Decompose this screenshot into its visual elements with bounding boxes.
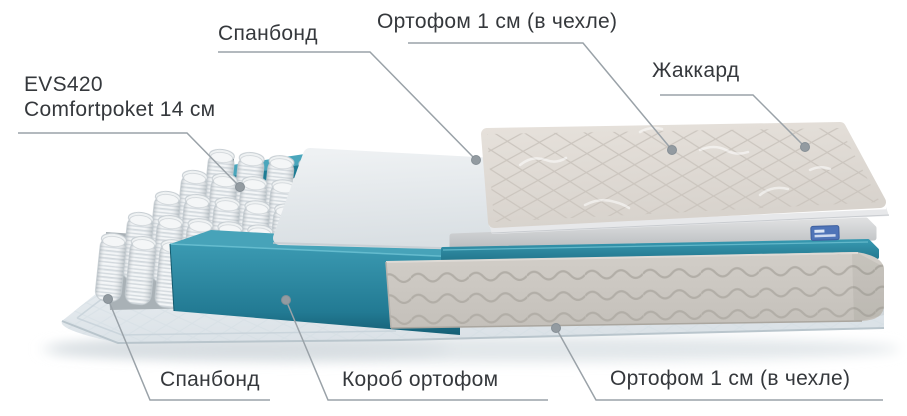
callout-ortofoam-bottom: Ортофом 1 см (в чехле) (610, 366, 850, 391)
leader-spanbond-top (218, 52, 476, 160)
springs-size-line: Comfortpoket 14 см (24, 97, 215, 122)
mattress-illustration (0, 0, 907, 416)
callout-ortofoam-top: Ортофом 1 см (в чехле) (377, 9, 617, 34)
callout-jacquard: Жаккард (652, 58, 739, 83)
brand-tag (811, 226, 839, 241)
callout-spanbond-bottom: Спанбонд (160, 367, 260, 392)
callout-korob: Короб ортофом (342, 367, 498, 392)
springs-model-line: EVS420 (24, 72, 215, 97)
ortofoam-side-layer (386, 252, 884, 328)
callout-springs: EVS420 Comfortpoket 14 см (24, 72, 215, 122)
mattress-layers-diagram: Спанбонд Ортофом 1 см (в чехле) Жаккард … (0, 0, 907, 416)
jacquard-quilted-top (487, 128, 889, 234)
callout-spanbond-top: Спанбонд (218, 21, 318, 46)
